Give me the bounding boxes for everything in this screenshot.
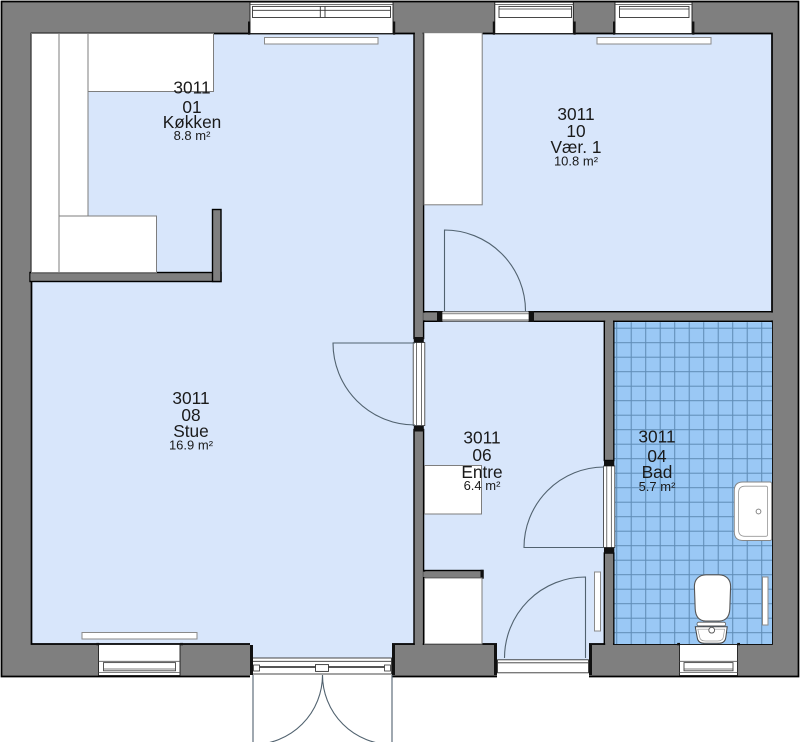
svg-text:6.4 m²: 6.4 m²	[464, 478, 502, 493]
svg-text:3011: 3011	[173, 78, 210, 98]
svg-text:3011: 3011	[638, 427, 675, 447]
svg-text:10.8 m²: 10.8 m²	[554, 154, 599, 169]
svg-text:8.8 m²: 8.8 m²	[174, 128, 212, 143]
svg-text:5.7 m²: 5.7 m²	[639, 479, 677, 494]
svg-text:16.9 m²: 16.9 m²	[169, 437, 214, 452]
